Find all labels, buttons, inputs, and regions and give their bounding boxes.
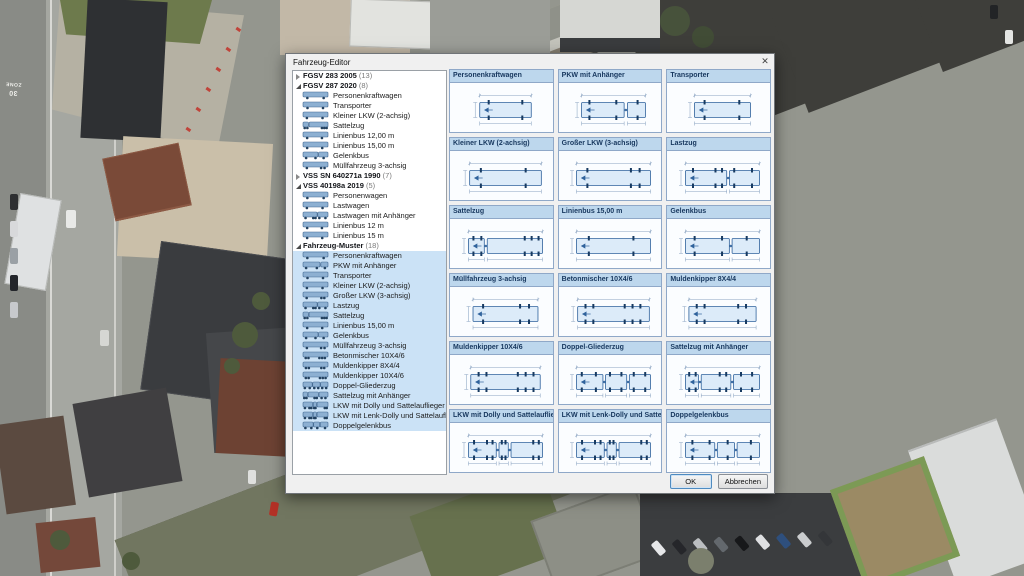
vehicle-icon xyxy=(302,191,329,201)
vehicle-card-title: Betonmischer 10X4/6 xyxy=(559,274,662,287)
vehicle-card-title: Doppelgelenkbus xyxy=(667,410,770,423)
tree-item[interactable]: Sattelzug mit Anhänger xyxy=(293,391,446,401)
vehicle-icon xyxy=(302,281,329,291)
vehicle-drawing xyxy=(559,83,662,132)
vehicle-drawing-svg xyxy=(562,153,657,199)
vehicle-card-title: Personenkraftwagen xyxy=(450,70,553,83)
vehicle-card[interactable]: Personenkraftwagen xyxy=(449,69,554,133)
vehicle-card-title: Doppel-Gliederzug xyxy=(559,342,662,355)
cancel-button[interactable]: Abbrechen xyxy=(718,474,768,489)
vehicle-card-title: Müllfahrzeug 3-achsig xyxy=(450,274,553,287)
tree-item-label: Lastzug xyxy=(333,301,359,311)
vehicle-drawing-svg xyxy=(562,357,657,403)
tree-group-count: (7) xyxy=(383,171,392,180)
tree xyxy=(692,26,714,48)
vehicle-icon xyxy=(302,211,329,221)
tree-item[interactable]: Doppel-Gliederzug xyxy=(293,381,446,391)
vehicle-card-title: Sattelzug xyxy=(450,206,553,219)
tree-item[interactable]: Müllfahrzeug 3-achsig xyxy=(293,161,446,171)
tree-item-label: Linienbus 15 m xyxy=(333,231,384,241)
tree-group[interactable]: FGSV 283 2005 (13) xyxy=(293,71,446,81)
tree-item[interactable]: Gelenkbus xyxy=(293,331,446,341)
tree-item[interactable]: Personenkraftwagen xyxy=(293,91,446,101)
vehicle-icon xyxy=(302,341,329,351)
parked-car xyxy=(10,302,18,318)
tree-item[interactable]: Muldenkipper 10X4/6 xyxy=(293,371,446,381)
parked-car xyxy=(1005,30,1013,44)
vehicle-drawing xyxy=(559,219,662,268)
parked-car xyxy=(10,275,18,291)
tree-item[interactable]: Linienbus 15,00 m xyxy=(293,141,446,151)
vehicle-icon xyxy=(302,311,329,321)
vehicle-drawing-svg xyxy=(454,85,549,131)
vehicle-card[interactable]: Sattelzug mit Anhänger xyxy=(666,341,771,405)
tree-item-label: Linienbus 12 m xyxy=(333,221,384,231)
tree-item[interactable]: PKW mit Anhänger xyxy=(293,261,446,271)
tree-item[interactable]: Personenwagen xyxy=(293,191,446,201)
tree xyxy=(252,292,270,310)
tree-item-label: Lastwagen xyxy=(333,201,369,211)
tree-item[interactable]: Sattelzug xyxy=(293,311,446,321)
vehicle-drawing xyxy=(667,423,770,472)
vehicle-drawing-svg xyxy=(671,289,766,335)
vehicle-drawing-svg xyxy=(562,221,657,267)
tree-item[interactable]: Lastzug xyxy=(293,301,446,311)
vehicle-drawing xyxy=(450,219,553,268)
vehicle-icon xyxy=(302,401,329,411)
vehicle-icon xyxy=(302,301,329,311)
vehicle-icon xyxy=(302,121,329,131)
vehicle-card-title: Transporter xyxy=(667,70,770,83)
tree-item[interactable]: LKW mit Lenk-Dolly und Sattelauflieger xyxy=(293,411,446,421)
tree-item[interactable]: Kleiner LKW (2-achsig) xyxy=(293,111,446,121)
zone30-road-marking: 30 ZONE xyxy=(3,56,25,97)
tree-group-count: (13) xyxy=(359,71,372,80)
vehicle-icon xyxy=(302,331,329,341)
vehicle-drawing xyxy=(667,151,770,200)
vehicle-icon xyxy=(302,411,329,421)
tree-item-label: Sattelzug xyxy=(333,311,364,321)
vehicle-drawing xyxy=(450,83,553,132)
vehicle-icon xyxy=(302,141,329,151)
vehicle-icon xyxy=(302,231,329,241)
tree-item[interactable]: LKW mit Dolly und Sattelauflieger xyxy=(293,401,446,411)
vehicle-card[interactable]: Betonmischer 10X4/6 xyxy=(558,273,663,337)
tree-item-label: Transporter xyxy=(333,101,372,111)
vehicle-icon xyxy=(302,161,329,171)
tree-group-label: VSS 40198a 2019 (5) xyxy=(303,181,375,191)
vehicle-icon xyxy=(302,291,329,301)
tree-item[interactable]: Großer LKW (3-achsig) xyxy=(293,291,446,301)
tree-group[interactable]: FGSV 287 2020 (8) xyxy=(293,81,446,91)
dialog-title: Fahrzeug-Editor xyxy=(286,58,756,67)
vehicle-drawing xyxy=(559,287,662,336)
vehicle-drawing xyxy=(667,219,770,268)
vehicle-icon xyxy=(302,251,329,261)
vehicle-card[interactable]: Transporter xyxy=(666,69,771,133)
tree-group[interactable]: VSS SN 640271a 1990 (7) xyxy=(293,171,446,181)
tree-item[interactable]: Lastwagen mit Anhänger xyxy=(293,211,446,221)
vehicle-drawing-svg xyxy=(454,221,549,267)
vehicle-icon xyxy=(302,371,329,381)
tree-item-label: Linienbus 15,00 m xyxy=(333,321,394,331)
collapse-icon[interactable] xyxy=(296,84,301,89)
tree-item[interactable]: Linienbus 12 m xyxy=(293,221,446,231)
vehicle-icon xyxy=(302,381,329,391)
tree-item-label: Lastwagen mit Anhänger xyxy=(333,211,416,221)
tree-item-label: Linienbus 15,00 m xyxy=(333,141,394,151)
tree-item-label: Müllfahrzeug 3-achsig xyxy=(333,341,406,351)
tree-item-label: PKW mit Anhänger xyxy=(333,261,396,271)
tree-item[interactable]: Müllfahrzeug 3-achsig xyxy=(293,341,446,351)
parked-car xyxy=(10,194,18,210)
tree-item-label: LKW mit Dolly und Sattelauflieger xyxy=(333,401,445,411)
tree-item[interactable]: Kleiner LKW (2-achsig) xyxy=(293,281,446,291)
vehicle-drawing xyxy=(667,355,770,404)
expand-icon[interactable] xyxy=(296,174,300,180)
vehicle-drawing xyxy=(450,287,553,336)
driving-car xyxy=(100,330,109,346)
vehicle-icon xyxy=(302,421,329,431)
tree-group-count: (5) xyxy=(366,181,375,190)
white-building xyxy=(349,0,436,49)
vehicle-drawing-svg xyxy=(562,85,657,131)
tree-item-label: Gelenkbus xyxy=(333,151,369,161)
tree xyxy=(224,358,240,374)
vehicle-card-title: LKW mit Lenk-Dolly und Sattelauflieger xyxy=(559,410,662,423)
vehicle-drawing-svg xyxy=(454,357,549,403)
vehicle-icon xyxy=(302,261,329,271)
vehicle-icon xyxy=(302,101,329,111)
tree-item-label: Großer LKW (3-achsig) xyxy=(333,291,411,301)
tree-group-count: (18) xyxy=(366,241,379,250)
tree-item-label: Linienbus 12,00 m xyxy=(333,131,394,141)
vehicle-drawing-svg xyxy=(671,357,766,403)
tree xyxy=(660,6,690,36)
tree-item-label: Muldenkipper 10X4/6 xyxy=(333,371,404,381)
parked-car xyxy=(10,248,18,264)
vehicle-icon xyxy=(302,151,329,161)
vehicle-icon xyxy=(302,361,329,371)
vehicle-card[interactable]: Müllfahrzeug 3-achsig xyxy=(449,273,554,337)
vehicle-drawing-svg xyxy=(454,425,549,471)
tree-group-label: FGSV 283 2005 (13) xyxy=(303,71,372,81)
tree-item-label: Kleiner LKW (2-achsig) xyxy=(333,111,410,121)
vehicle-card-title: LKW mit Dolly und Sattelauflieger xyxy=(450,410,553,423)
tree-item-label: Betonmischer 10X4/6 xyxy=(333,351,405,361)
tree-item[interactable]: Linienbus 12,00 m xyxy=(293,131,446,141)
collapse-icon[interactable] xyxy=(296,184,301,189)
vehicle-icon xyxy=(302,321,329,331)
vehicle-card[interactable]: LKW mit Lenk-Dolly und Sattelauflieger xyxy=(558,409,663,473)
vehicle-drawing-svg xyxy=(671,153,766,199)
vehicle-card[interactable]: Doppel-Gliederzug xyxy=(558,341,663,405)
tree xyxy=(122,552,140,570)
tree-item-label: Kleiner LKW (2-achsig) xyxy=(333,281,410,291)
vehicle-drawing xyxy=(559,151,662,200)
vehicle-drawing xyxy=(559,423,662,472)
vehicle-icon xyxy=(302,391,329,401)
tree-item-label: Personenkraftwagen xyxy=(333,251,402,261)
collapse-icon[interactable] xyxy=(296,244,301,249)
tree-group[interactable]: Fahrzeug-Muster (18) xyxy=(293,241,446,251)
vehicle-card[interactable]: Muldenkipper 10X4/6 xyxy=(449,341,554,405)
tree-item[interactable]: Lastwagen xyxy=(293,201,446,211)
tree-item[interactable]: Betonmischer 10X4/6 xyxy=(293,351,446,361)
vehicle-drawing-svg xyxy=(562,425,657,471)
tree-item-label: Personenkraftwagen xyxy=(333,91,402,101)
vehicle-card[interactable]: Linienbus 15,00 m xyxy=(558,205,663,269)
vehicle-card-title: Sattelzug mit Anhänger xyxy=(667,342,770,355)
tree-group-label: Fahrzeug-Muster (18) xyxy=(303,241,379,251)
dialog-titlebar[interactable]: Fahrzeug-Editor ✕ xyxy=(286,54,774,70)
vehicle-icon xyxy=(302,111,329,121)
vehicle-icon xyxy=(302,91,329,101)
vehicle-card-title: Gelenkbus xyxy=(667,206,770,219)
vehicle-drawing xyxy=(667,287,770,336)
vehicle-drawing xyxy=(450,423,553,472)
tree-item[interactable]: Personenkraftwagen xyxy=(293,251,446,261)
vehicle-card[interactable]: PKW mit Anhänger xyxy=(558,69,663,133)
tree-item-label: Gelenkbus xyxy=(333,331,369,341)
vehicle-card-title: Muldenkipper 10X4/6 xyxy=(450,342,553,355)
tree-item[interactable]: Linienbus 15,00 m xyxy=(293,321,446,331)
vehicle-drawing-svg xyxy=(671,221,766,267)
tree-item[interactable]: Doppelgelenkbus xyxy=(293,421,446,431)
tree-item-label: Muldenkipper 8X4/4 xyxy=(333,361,400,371)
vehicle-grid: PersonenkraftwagenPKW mit AnhängerTransp… xyxy=(449,69,771,475)
parked-car xyxy=(10,221,18,237)
tree-item[interactable]: Sattelzug xyxy=(293,121,446,131)
tree-group-label: VSS SN 640271a 1990 (7) xyxy=(303,171,392,181)
vehicle-drawing xyxy=(450,355,553,404)
tree-group-label: FGSV 287 2020 (8) xyxy=(303,81,368,91)
vehicle-drawing xyxy=(667,83,770,132)
screenshot-root: 30 ZONE Fahrzeug-Editor ✕ F xyxy=(0,0,1024,576)
vehicle-card[interactable]: Gelenkbus xyxy=(666,205,771,269)
vehicle-icon xyxy=(302,351,329,361)
vehicle-card-title: Lastzug xyxy=(667,138,770,151)
vehicle-icon xyxy=(302,201,329,211)
tree-item-label: Doppelgelenkbus xyxy=(333,421,391,431)
tree-item-label: Müllfahrzeug 3-achsig xyxy=(333,161,406,171)
vehicle-drawing-svg xyxy=(562,289,657,335)
tree xyxy=(232,322,258,348)
tree-item[interactable]: Linienbus 15 m xyxy=(293,231,446,241)
tree-item-label: Transporter xyxy=(333,271,372,281)
dark-roof-building xyxy=(72,387,182,497)
expand-icon[interactable] xyxy=(296,74,300,80)
tree-group[interactable]: VSS 40198a 2019 (5) xyxy=(293,181,446,191)
driving-car xyxy=(66,210,76,228)
tree-item-label: Doppel-Gliederzug xyxy=(333,381,396,391)
brown-roof-building xyxy=(0,416,76,515)
vehicle-card[interactable]: Doppelgelenkbus xyxy=(666,409,771,473)
vehicle-drawing xyxy=(450,151,553,200)
vehicle-card-title: Muldenkipper 8X4/4 xyxy=(667,274,770,287)
vehicle-card-title: Kleiner LKW (2-achsig) xyxy=(450,138,553,151)
white-car xyxy=(248,470,256,484)
vehicle-drawing-svg xyxy=(454,153,549,199)
tree-item[interactable]: Muldenkipper 8X4/4 xyxy=(293,361,446,371)
parked-car xyxy=(990,5,998,19)
vehicle-drawing-svg xyxy=(454,289,549,335)
vehicle-card[interactable]: Kleiner LKW (2-achsig) xyxy=(449,137,554,201)
ok-button[interactable]: OK xyxy=(670,474,712,489)
tree-item[interactable]: Gelenkbus xyxy=(293,151,446,161)
vehicle-tree[interactable]: FGSV 283 2005 (13)FGSV 287 2020 (8)Perso… xyxy=(292,70,447,475)
vehicle-card[interactable]: Großer LKW (3-achsig) xyxy=(558,137,663,201)
vehicle-card[interactable]: Sattelzug xyxy=(449,205,554,269)
vehicle-drawing xyxy=(559,355,662,404)
vehicle-card-title: PKW mit Anhänger xyxy=(559,70,662,83)
bare-tree xyxy=(688,548,714,574)
vehicle-drawing-svg xyxy=(671,425,766,471)
tree xyxy=(50,530,70,550)
vehicle-card[interactable]: Muldenkipper 8X4/4 xyxy=(666,273,771,337)
vehicle-card[interactable]: Lastzug xyxy=(666,137,771,201)
building-shadow xyxy=(560,38,660,52)
vehicle-drawing-svg xyxy=(671,85,766,131)
tree-item-label: Personenwagen xyxy=(333,191,387,201)
dialog-button-row: OK Abbrechen xyxy=(670,474,768,489)
dark-roof-building xyxy=(80,0,167,142)
vehicle-icon xyxy=(302,131,329,141)
vehicle-icon xyxy=(302,271,329,281)
tree-item[interactable]: Transporter xyxy=(293,271,446,281)
fahrzeug-editor-dialog: Fahrzeug-Editor ✕ FGSV 283 2005 (13)FGSV… xyxy=(285,53,775,494)
tree-item-label: Sattelzug xyxy=(333,121,364,131)
vehicle-card[interactable]: LKW mit Dolly und Sattelauflieger xyxy=(449,409,554,473)
tree-group-count: (8) xyxy=(359,81,368,90)
vehicle-card-title: Großer LKW (3-achsig) xyxy=(559,138,662,151)
tree-item-label: Sattelzug mit Anhänger xyxy=(333,391,411,401)
tree-item[interactable]: Transporter xyxy=(293,101,446,111)
street xyxy=(430,0,550,55)
vehicle-icon xyxy=(302,221,329,231)
tree-item-label: LKW mit Lenk-Dolly und Sattelauflieger xyxy=(333,411,446,421)
vehicle-card-title: Linienbus 15,00 m xyxy=(559,206,662,219)
close-icon[interactable]: ✕ xyxy=(756,55,774,69)
